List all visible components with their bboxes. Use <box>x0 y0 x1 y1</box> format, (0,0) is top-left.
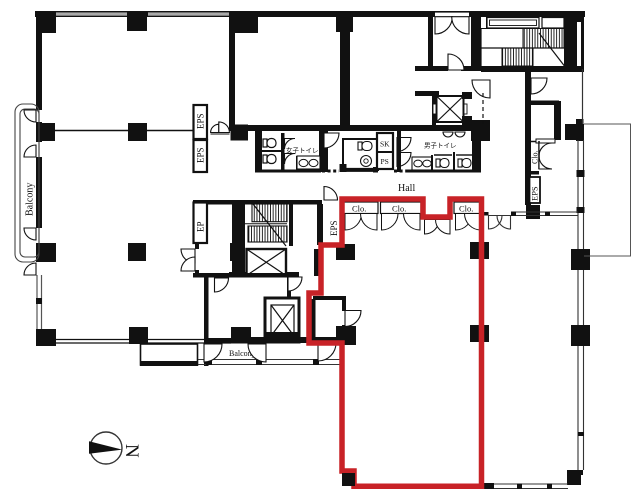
svg-text:Clo.: Clo. <box>352 204 366 214</box>
svg-text:Clo.: Clo. <box>531 150 540 164</box>
svg-text:Clo.: Clo. <box>392 204 406 214</box>
svg-text:EPS: EPS <box>196 113 206 129</box>
svg-text:PS: PS <box>381 157 389 166</box>
svg-text:EPS: EPS <box>196 147 206 163</box>
svg-text:EPS: EPS <box>329 220 339 236</box>
svg-text:Clo.: Clo. <box>459 204 473 214</box>
svg-text:女子トイレ: 女子トイレ <box>286 146 319 155</box>
svg-text:EPS: EPS <box>530 186 540 201</box>
svg-text:Balcony: Balcony <box>25 183 36 216</box>
svg-text:Hall: Hall <box>398 183 415 194</box>
svg-text:SK: SK <box>380 140 390 149</box>
svg-text:N: N <box>121 444 142 458</box>
svg-text:男子トイレ: 男子トイレ <box>424 142 457 150</box>
svg-text:EP: EP <box>196 221 206 232</box>
